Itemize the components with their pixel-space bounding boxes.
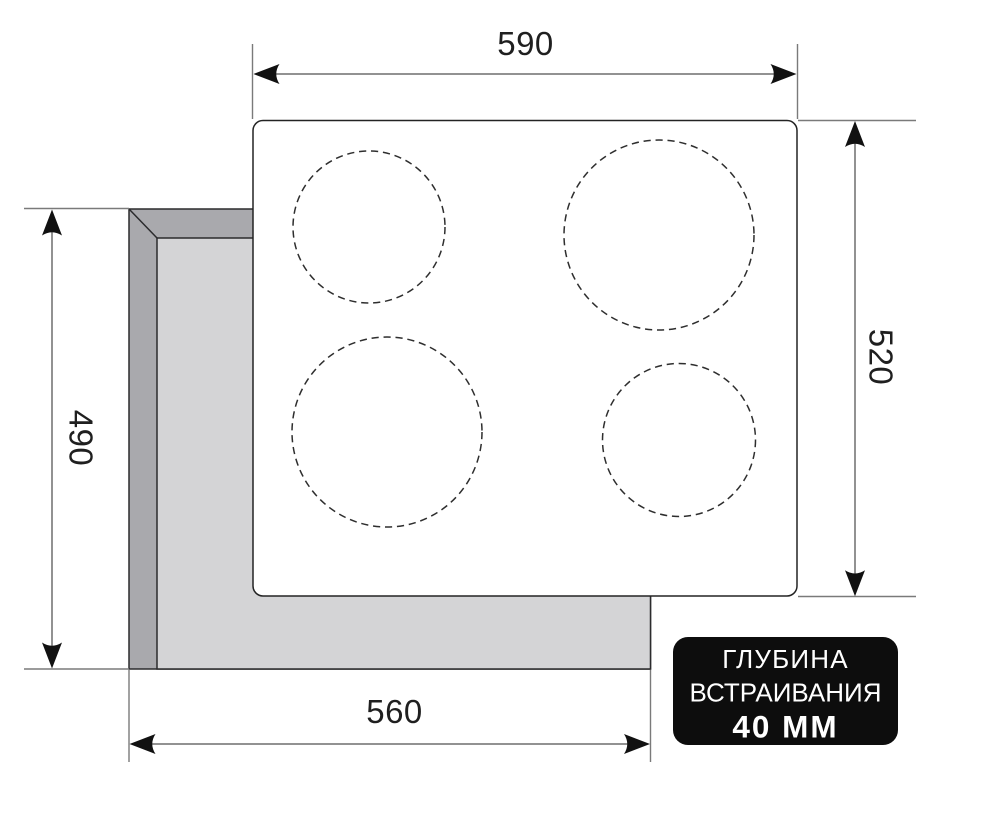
svg-text:490: 490	[63, 410, 100, 467]
svg-text:520: 520	[863, 329, 900, 386]
svg-text:560: 560	[366, 693, 423, 730]
svg-text:590: 590	[497, 25, 554, 62]
svg-text:40 ММ: 40 ММ	[732, 709, 838, 745]
svg-text:ГЛУБИНА: ГЛУБИНА	[722, 644, 848, 674]
svg-text:ВСТРАИВАНИЯ: ВСТРАИВАНИЯ	[690, 678, 882, 708]
